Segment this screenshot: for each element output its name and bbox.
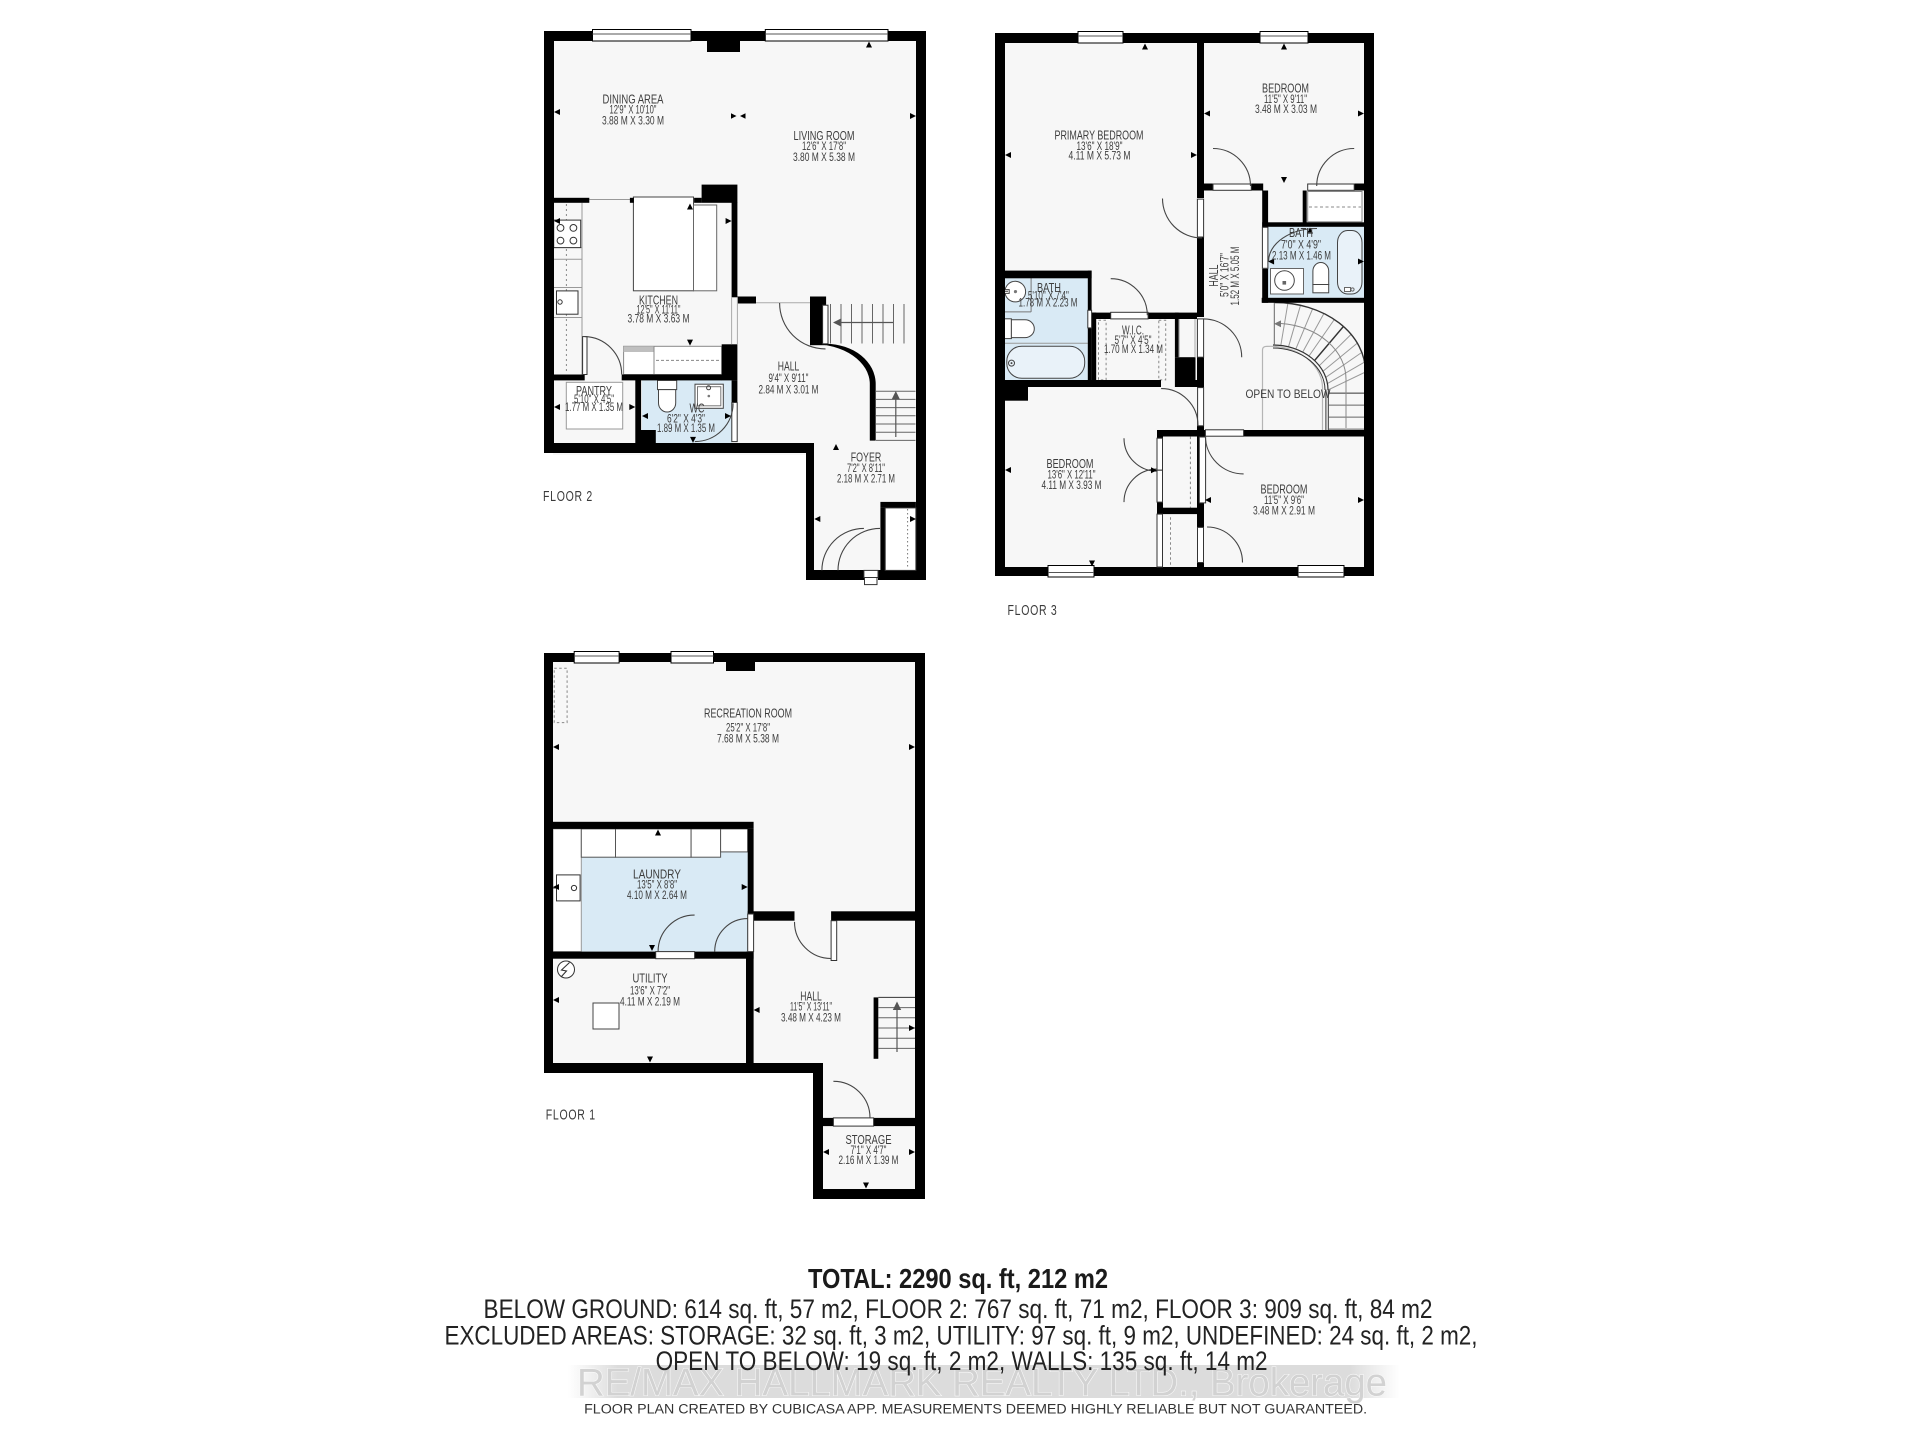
svg-text:FLOOR 3: FLOOR 3 xyxy=(1008,603,1058,619)
svg-text:2.16 M X 1.39 M: 2.16 M X 1.39 M xyxy=(839,1153,899,1167)
svg-text:1.78 M X 2.23 M: 1.78 M X 2.23 M xyxy=(1019,296,1078,310)
svg-text:3.78 M X 3.63 M: 3.78 M X 3.63 M xyxy=(628,312,690,326)
svg-text:FLOOR 1: FLOOR 1 xyxy=(546,1107,596,1123)
svg-text:RECREATION ROOM: RECREATION ROOM xyxy=(704,706,792,721)
svg-text:2.18 M X 2.71 M: 2.18 M X 2.71 M xyxy=(837,471,895,485)
svg-text:1.52 M X 5.05 M: 1.52 M X 5.05 M xyxy=(1228,247,1242,306)
svg-text:4.10 M X 2.64 M: 4.10 M X 2.64 M xyxy=(627,888,687,902)
svg-text:1.77 M X 1.35 M: 1.77 M X 1.35 M xyxy=(565,400,623,414)
svg-text:3.88 M X 3.30 M: 3.88 M X 3.30 M xyxy=(602,113,664,127)
svg-text:OPEN TO BELOW: OPEN TO BELOW xyxy=(1246,387,1332,401)
svg-text:3.48 M X 2.91 M: 3.48 M X 2.91 M xyxy=(1253,504,1315,518)
svg-text:BELOW GROUND: 614 sq. ft, 57 m: BELOW GROUND: 614 sq. ft, 57 m2, FLOOR 2… xyxy=(484,1294,1433,1324)
svg-text:OPEN TO BELOW: 19 sq. ft, 2 m2: OPEN TO BELOW: 19 sq. ft, 2 m2, WALLS: 1… xyxy=(656,1346,1268,1376)
svg-text:TOTAL: 2290 sq. ft, 212 m2: TOTAL: 2290 sq. ft, 212 m2 xyxy=(808,1263,1108,1294)
svg-text:4.11 M X 5.73 M: 4.11 M X 5.73 M xyxy=(1069,149,1131,163)
svg-text:4.11 M X 2.19 M: 4.11 M X 2.19 M xyxy=(620,994,680,1008)
svg-text:7.68 M X 5.38 M: 7.68 M X 5.38 M xyxy=(717,731,779,745)
svg-text:4.11 M X 3.93 M: 4.11 M X 3.93 M xyxy=(1042,478,1102,492)
svg-text:3.48 M X 3.03 M: 3.48 M X 3.03 M xyxy=(1255,102,1317,116)
svg-text:2.13 M X 1.46 M: 2.13 M X 1.46 M xyxy=(1272,248,1331,262)
svg-text:1.70 M X 1.34 M: 1.70 M X 1.34 M xyxy=(1104,342,1163,356)
svg-text:FLOOR PLAN CREATED BY CUBICASA: FLOOR PLAN CREATED BY CUBICASA APP. MEAS… xyxy=(584,1402,1367,1417)
svg-text:3.48 M X 4.23 M: 3.48 M X 4.23 M xyxy=(781,1010,841,1024)
svg-text:3.80 M X 5.38 M: 3.80 M X 5.38 M xyxy=(793,150,855,164)
svg-text:1.89 M X 1.35 M: 1.89 M X 1.35 M xyxy=(657,421,715,435)
svg-text:2.84 M X 3.01 M: 2.84 M X 3.01 M xyxy=(759,382,819,396)
svg-text:FLOOR 2: FLOOR 2 xyxy=(543,489,593,505)
